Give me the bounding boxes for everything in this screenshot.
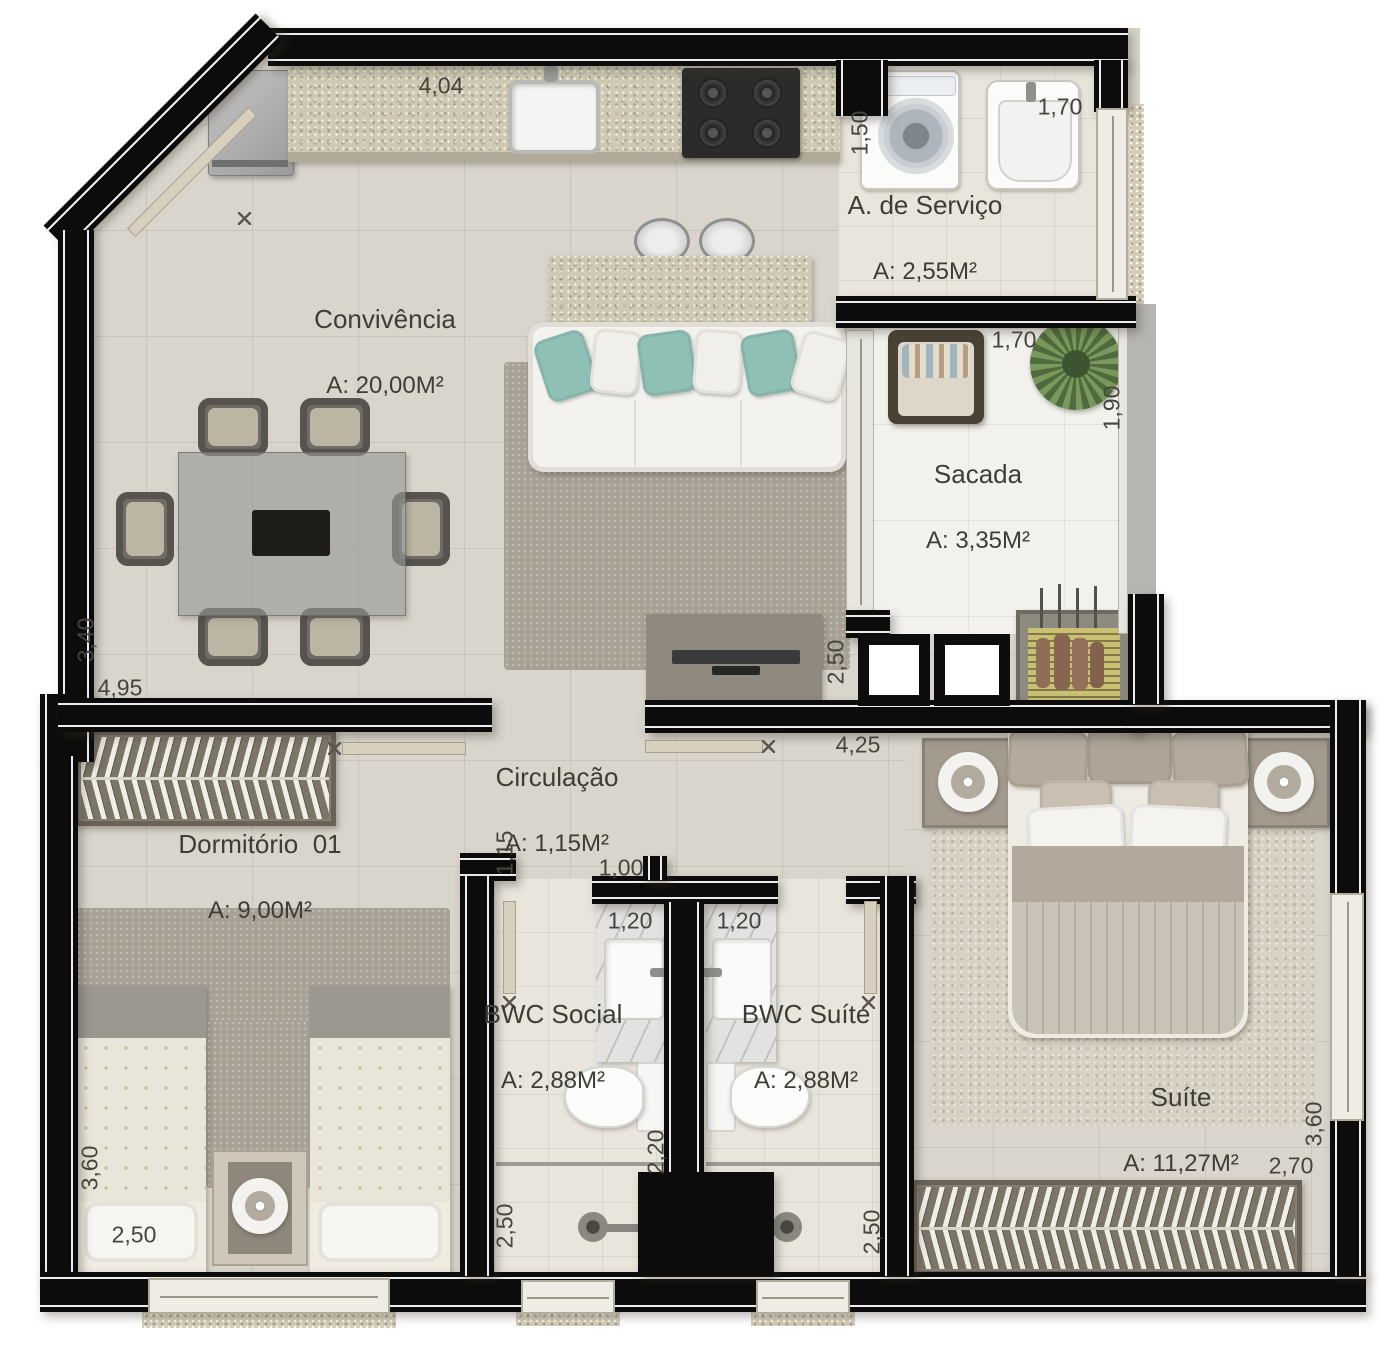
dining-chair xyxy=(300,608,370,666)
bwc-suite-window xyxy=(756,1280,850,1314)
wall-segment xyxy=(1128,594,1164,704)
dorm-window xyxy=(148,1278,390,1314)
dorm-lamp-icon xyxy=(232,1178,288,1234)
sofa-pillow xyxy=(589,328,643,397)
room-label-sacada: Sacada A: 3,35M² xyxy=(926,421,1030,593)
room-area: A: 3,35M² xyxy=(926,527,1030,555)
dim-kitchen-counter: 4,04 xyxy=(419,73,464,100)
dim-sacada-depth: 1,90 xyxy=(1099,386,1126,431)
tv-base-icon xyxy=(712,666,760,675)
room-label-convivencia: Convivência A: 20,00M² xyxy=(314,266,456,438)
dim-hall-span: 4,25 xyxy=(836,732,881,759)
dim-bwc-suite-depth: 2,50 xyxy=(859,1210,886,1255)
tub-faucet-icon xyxy=(1026,82,1036,102)
door-hinge-icon xyxy=(762,740,775,753)
dim-servico-tank: 1,70 xyxy=(1038,94,1083,121)
room-name: Dormitório 01 xyxy=(178,829,341,860)
bbq-meat-icon xyxy=(1054,634,1070,690)
shaft xyxy=(934,634,1010,706)
room-name: A. de Serviço xyxy=(848,190,1003,221)
dim-circ-width: 1,15 xyxy=(492,831,519,876)
sacada-glass-door xyxy=(846,330,874,614)
tv-icon xyxy=(672,650,800,664)
wall-segment xyxy=(638,1172,774,1276)
dim-dorm-depth: 3,60 xyxy=(77,1146,104,1191)
stove xyxy=(682,68,800,158)
dim-suite-depth: 3,60 xyxy=(1301,1102,1328,1147)
dim-bwc-divider: 2,20 xyxy=(643,1130,670,1175)
servico-window xyxy=(1096,108,1128,300)
burner-icon xyxy=(752,118,782,148)
dorm-door xyxy=(342,742,466,755)
room-label-bwc-social: BWC Social A: 2,88M² xyxy=(484,961,623,1133)
bar-counter xyxy=(548,256,812,326)
room-name: BWC Social xyxy=(484,999,623,1030)
table-centerpiece xyxy=(252,510,330,556)
burner-icon xyxy=(698,78,728,108)
shower-head-icon xyxy=(578,1212,608,1242)
room-name: Suíte xyxy=(1123,1082,1239,1113)
shower-head-icon xyxy=(772,1212,802,1242)
dim-bwc-social-sink: 1,20 xyxy=(608,908,653,935)
room-area: A: 9,00M² xyxy=(178,897,341,925)
bbq-meat-icon xyxy=(1090,642,1104,688)
kitchen-sink xyxy=(508,80,600,154)
room-area: A: 2,88M² xyxy=(484,1067,623,1095)
dim-bwc-suite-sink: 1,20 xyxy=(717,908,762,935)
window-sill xyxy=(516,1312,620,1326)
suite-headboard-pillow xyxy=(1088,726,1172,784)
suite-door xyxy=(645,740,763,753)
room-name: Circulação xyxy=(496,762,619,793)
faucet-icon xyxy=(702,968,722,977)
bwc-social-window xyxy=(521,1280,615,1314)
wall-segment xyxy=(40,756,78,1286)
dim-dorm-bed: 2,50 xyxy=(112,1222,157,1249)
dorm-bed-pillow xyxy=(318,1202,442,1262)
dorm-bed-fold xyxy=(310,986,450,1038)
dorm-bed-fold xyxy=(76,986,206,1038)
window-sill xyxy=(751,1312,855,1326)
wall-segment xyxy=(58,698,492,732)
shaft xyxy=(858,634,930,706)
armchair-striped-pillow xyxy=(902,344,970,378)
door-hinge-icon xyxy=(238,212,251,225)
burner-icon xyxy=(698,118,728,148)
dim-tv-wall: 2,50 xyxy=(823,640,850,685)
wall-segment xyxy=(836,60,888,116)
dim-servico-opening: 1,50 xyxy=(847,111,874,156)
dim-bwc-door: 1,00 xyxy=(599,855,644,882)
bbq-meat-icon xyxy=(1072,638,1088,690)
door-hinge-icon xyxy=(328,742,341,755)
wall-segment xyxy=(664,902,704,1178)
floor-plan: Convivência A: 20,00M² A. de Serviço A: … xyxy=(0,0,1400,1356)
room-label-suite: Suíte A: 11,27M² xyxy=(1123,1044,1239,1216)
shower-glass xyxy=(496,1162,664,1166)
wall-segment xyxy=(268,28,1128,66)
room-area: A: 20,00M² xyxy=(314,372,456,400)
fridge-handle xyxy=(212,160,288,167)
room-name: Sacada xyxy=(926,459,1030,490)
dim-bwc-social-depth: 2,50 xyxy=(492,1204,519,1249)
wall-segment xyxy=(643,856,667,880)
room-area: A: 11,27M² xyxy=(1123,1150,1239,1178)
room-label-bwc-suite: BWC Suíte A: 2,88M² xyxy=(742,961,871,1133)
shower-glass xyxy=(706,1162,880,1166)
sofa-pillow xyxy=(636,329,698,398)
room-area: A: 2,55M² xyxy=(848,258,1003,286)
dim-living-width: 4,95 xyxy=(98,675,143,702)
suite-wardrobe xyxy=(912,1180,1302,1276)
wall-segment xyxy=(1094,60,1128,112)
suite-window xyxy=(1330,893,1364,1121)
room-label-servico: A. de Serviço A: 2,55M² xyxy=(848,152,1003,324)
dorm-bed-blanket xyxy=(310,1038,450,1202)
balcony-rail xyxy=(1118,306,1128,634)
sofa-seam xyxy=(740,400,742,466)
room-area: A: 2,88M² xyxy=(742,1067,871,1095)
room-name: BWC Suíte xyxy=(742,999,871,1030)
kitchen-faucet-icon xyxy=(544,66,558,82)
dim-sacada-width: 1,70 xyxy=(992,327,1037,354)
dining-chair xyxy=(198,608,268,666)
sofa-pillow xyxy=(692,328,744,395)
burner-icon xyxy=(752,78,782,108)
suite-lamp-icon xyxy=(938,752,998,812)
suite-duvet xyxy=(1012,902,1244,1034)
suite-blanket-fold xyxy=(1012,846,1244,906)
suite-lamp-icon xyxy=(1254,752,1314,812)
bbq-meat-icon xyxy=(1036,638,1050,688)
window-sill xyxy=(142,1312,396,1328)
room-label-dormitorio: Dormitório 01 A: 9,00M² xyxy=(178,791,341,963)
plant-core-icon xyxy=(1062,350,1090,378)
dim-living-depth: 3,40 xyxy=(73,618,100,663)
window-sill xyxy=(1128,104,1144,304)
dim-suite-width: 2,70 xyxy=(1269,1153,1314,1180)
dining-chair xyxy=(116,492,174,566)
room-name: Convivência xyxy=(314,304,456,335)
sofa-seam xyxy=(634,400,636,466)
dining-chair xyxy=(198,398,268,456)
